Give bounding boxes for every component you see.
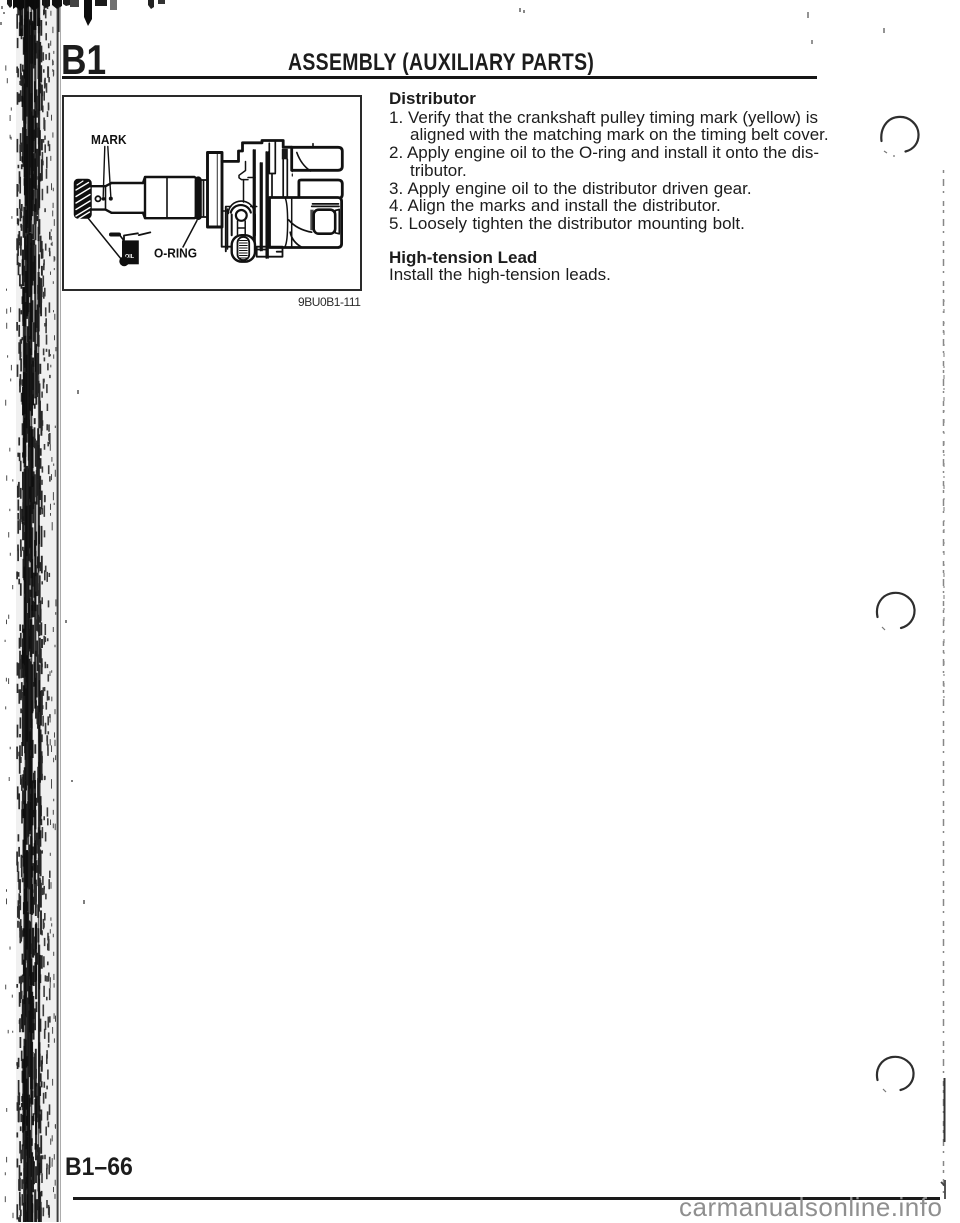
svg-text:MARK: MARK bbox=[91, 132, 127, 147]
svg-text:O-RING: O-RING bbox=[154, 246, 197, 261]
